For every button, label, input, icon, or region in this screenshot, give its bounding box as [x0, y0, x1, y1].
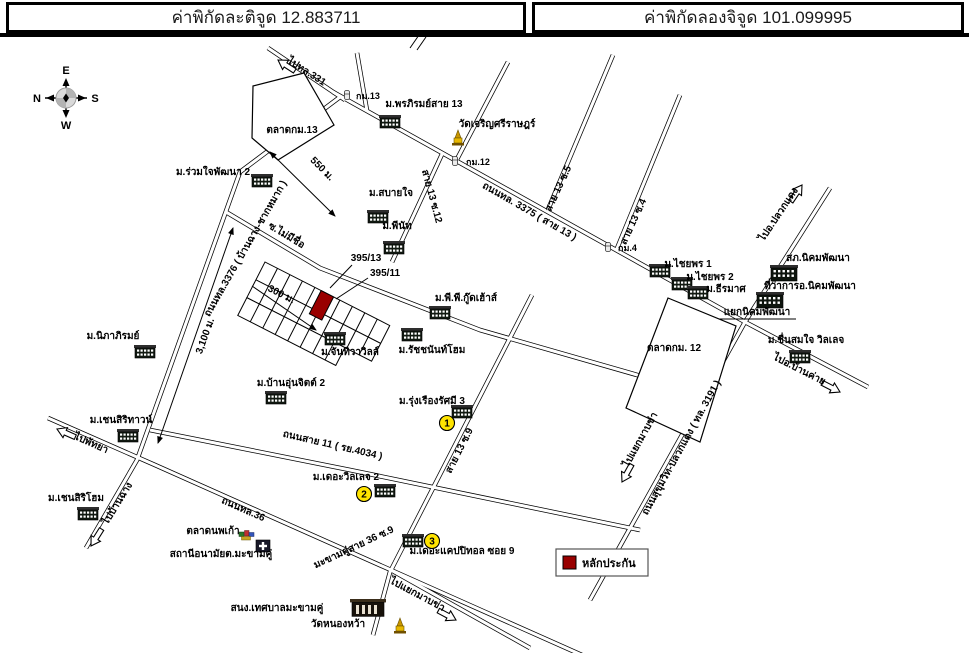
village-janthiwa-icon [324, 332, 346, 345]
label-health-station: สถานีอนามัยต.มะขามคู่ [170, 548, 273, 561]
label-market-km13: ตลาดกม.13 [266, 125, 318, 136]
temple-charoensi-icon [452, 130, 464, 146]
police-station-icon [770, 265, 798, 281]
village-chensiritown-icon [117, 429, 139, 442]
road-break-mark [410, 35, 419, 48]
compass-top-letter: E [62, 65, 69, 77]
compass-rose: E N S W [33, 65, 99, 132]
distance-550m: 550 ม. [308, 155, 336, 183]
km4-milestone-icon [605, 243, 610, 252]
subdivision-grid [238, 262, 390, 379]
label-chuensomjai: ม.ชื่นสมใจ วิลเลจ [768, 332, 844, 346]
label-to-pluakdaeng: ไปอ.ปลวกแดง [755, 185, 801, 245]
km12-milestone-icon [452, 157, 457, 166]
label-ruamjai: ม.ร่วมใจพัฒนา 2 [176, 165, 251, 178]
label-municipality: สนง.เทศบาลมะขามคู่ [231, 602, 324, 615]
compass-right-letter: S [91, 93, 98, 105]
temple-nongwa-icon [394, 618, 406, 634]
label-police-station: สภ.นิคมพัฒนา [786, 252, 850, 264]
badge-2-number: 2 [361, 490, 367, 501]
label-nipaphirom: ม.นิภาภิรมย์ [87, 330, 140, 342]
label-phonphirom: ม.พรภิรมย์สาย 13 [385, 98, 463, 110]
road-break-mark [417, 37, 426, 50]
noppakao-market-icon [239, 531, 254, 541]
map-document: ค่าพิกัดละติจูด 12.883711 ค่าพิกัดลองจิจ… [0, 0, 969, 653]
plot-number-top: 395/13 [351, 253, 382, 264]
village-phonphirom-icon [379, 115, 401, 128]
label-district-office: ที่ว่าการอ.นิคมพัฒนา [764, 278, 856, 292]
label-nikhom-junction: แยกนิคมพัฒนา [724, 306, 791, 318]
village-chensirihome-icon [77, 507, 99, 520]
label-chaiyaporn1: ม.ไชยพร 1 [664, 257, 712, 270]
village-thevillage2-icon [374, 484, 396, 497]
village-ppgoodhouse-icon [429, 306, 451, 319]
label-peenut: ม.พีนัท [382, 220, 412, 232]
label-km12: กม.12 [466, 157, 490, 167]
plot-leader-line [330, 265, 352, 288]
label-thevillage2: ม.เดอะวิลเลจ 2 [313, 471, 380, 483]
municipality-office-icon [350, 599, 386, 616]
label-chensiritown: ม.เชนสิริทาวน์ [90, 414, 153, 426]
village-peenut-icon [383, 241, 405, 254]
badge-3-number: 3 [429, 537, 435, 548]
label-wat-charoensi: วัดเจริญศรีราษฎร์ [459, 118, 536, 130]
district-office-icon [756, 292, 784, 308]
compass-bottom-letter: W [61, 120, 72, 132]
label-to-mabkha: ไปแยกมาบข่า [619, 410, 660, 470]
label-ratchanan: ม.รัชชนันท์โฮม [399, 343, 466, 356]
label-chaiyaporn2: ม.ไชยพร 2 [686, 270, 734, 283]
label-noppakao-market: ตลาดนพเก้า [186, 525, 239, 537]
compass-left-letter: N [33, 93, 41, 105]
village-ratchanan-icon [401, 328, 423, 341]
plot-number-bottom: 395/11 [370, 268, 400, 279]
legend-collateral-swatch [563, 556, 576, 569]
distance-3100m: 3,100 ม. [194, 317, 217, 356]
village-baanunjit-icon [265, 391, 287, 404]
label-capitol: ม.เดอะแคปปิทอล ซอย 9 [410, 545, 515, 557]
measure-3100m-line [158, 228, 233, 443]
badge-2: 2 [357, 487, 372, 502]
label-ppgoodhouse: ม.พี.พี.กู๊ดเฮ้าส์ [435, 292, 498, 305]
badge-1: 1 [440, 416, 455, 431]
label-janthiwa: ม.จันทิวาวิลล์ [321, 346, 379, 358]
market-km12-area [626, 298, 736, 442]
badge-3: 3 [425, 534, 440, 549]
label-rungruang: ม.รุ่งเรืองรัศมี 3 [399, 395, 465, 407]
label-baanunjit: ม.บ้านอุ่นจิตต์ 2 [257, 377, 326, 389]
badge-1-number: 1 [444, 419, 450, 430]
label-sabaijai: ม.สบายใจ [369, 186, 413, 199]
legend-collateral-label: หลักประกัน [582, 557, 636, 570]
label-chensirihome: ม.เชนสิริโฮม [48, 491, 104, 504]
village-ruamjai-icon [251, 174, 273, 187]
label-theeramat: ม.ธีรมาศ [706, 283, 746, 295]
village-nipaphirom-icon [134, 345, 156, 358]
map-canvas: 395/13 395/11 550 ม. 300 ม. 3,100 ม. [0, 0, 969, 653]
label-market-km12: ตลาดกม. 12 [647, 343, 701, 354]
label-wat-nongwa: วัดหนองหว้า [311, 618, 365, 630]
legend-box: หลักประกัน [556, 549, 648, 576]
label-km13: กม.13 [356, 91, 380, 101]
label-km4: กม.4 [618, 243, 637, 253]
label-sai13-soi5: สาย 13 ซ.5 [543, 164, 574, 214]
km13-milestone-icon [344, 91, 349, 100]
